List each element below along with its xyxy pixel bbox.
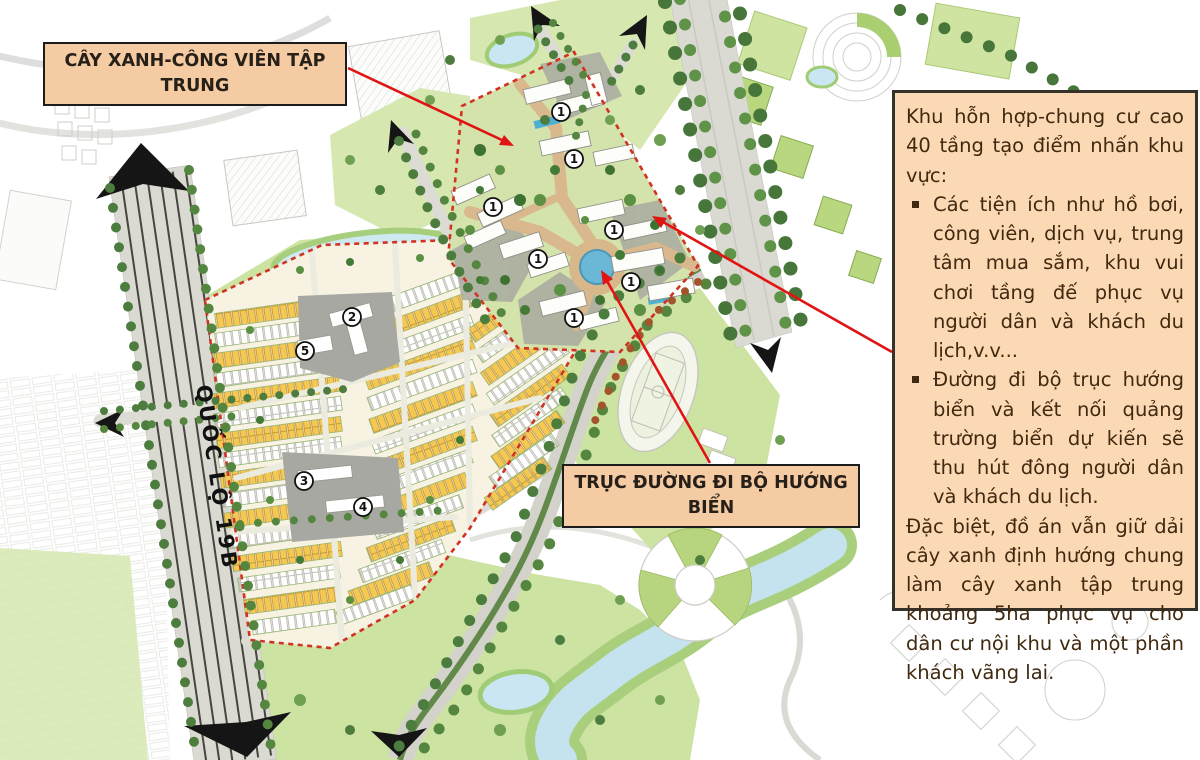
info-panel: Khu hỗn hợp-chung cư cao 40 tầng tạo điể… <box>892 90 1198 611</box>
plot-marker: 1 <box>565 150 583 168</box>
callout-beach-walkway-label: TRỤC ĐƯỜNG ĐI BỘ HƯỚNG BIỂN <box>574 471 848 522</box>
plot-marker: 1 <box>565 309 583 327</box>
svg-text:1: 1 <box>489 200 497 214</box>
info-panel-intro: Khu hỗn hợp-chung cư cao 40 tầng tạo điể… <box>906 102 1184 190</box>
bullet-square-icon <box>912 201 919 208</box>
plot-marker: 1 <box>552 103 570 121</box>
info-panel-bullet-1: Các tiện ích như hồ bơi, công viên, dịch… <box>906 190 1184 366</box>
svg-text:1: 1 <box>557 105 565 119</box>
svg-text:3: 3 <box>300 474 308 488</box>
plot-marker: 1 <box>605 221 623 239</box>
callout-green-park: CÂY XANH-CÔNG VIÊN TẬP TRUNG <box>43 42 347 106</box>
plot-marker: 4 <box>354 498 372 516</box>
bullet-square-icon <box>912 376 919 383</box>
info-panel-bullet-2: Đường đi bộ trục hướng biển và kết nối q… <box>906 365 1184 511</box>
plot-marker: 2 <box>343 308 361 326</box>
svg-text:5: 5 <box>301 344 309 358</box>
plot-marker: 5 <box>296 342 314 360</box>
plot-marker: 3 <box>295 472 313 490</box>
svg-text:1: 1 <box>610 223 618 237</box>
radial-plaza <box>639 528 752 641</box>
master-plan-slide: 11111112534 QUỐC LỘ 19B CÂY XANH-CÔNG VI… <box>0 0 1200 760</box>
svg-text:1: 1 <box>570 311 578 325</box>
svg-text:1: 1 <box>570 152 578 166</box>
plot-marker: 1 <box>622 273 640 291</box>
svg-text:2: 2 <box>348 310 356 324</box>
plot-marker: 1 <box>529 250 547 268</box>
callout-beach-walkway: TRỤC ĐƯỜNG ĐI BỘ HƯỚNG BIỂN <box>562 464 860 528</box>
plot-marker: 1 <box>484 198 502 216</box>
svg-text:4: 4 <box>359 500 367 514</box>
info-panel-outro: Đặc biệt, đồ án vẫn giữ dải cây xanh địn… <box>906 512 1184 688</box>
svg-text:1: 1 <box>627 275 635 289</box>
svg-text:1: 1 <box>534 252 542 266</box>
callout-green-park-label: CÂY XANH-CÔNG VIÊN TẬP TRUNG <box>55 49 335 100</box>
